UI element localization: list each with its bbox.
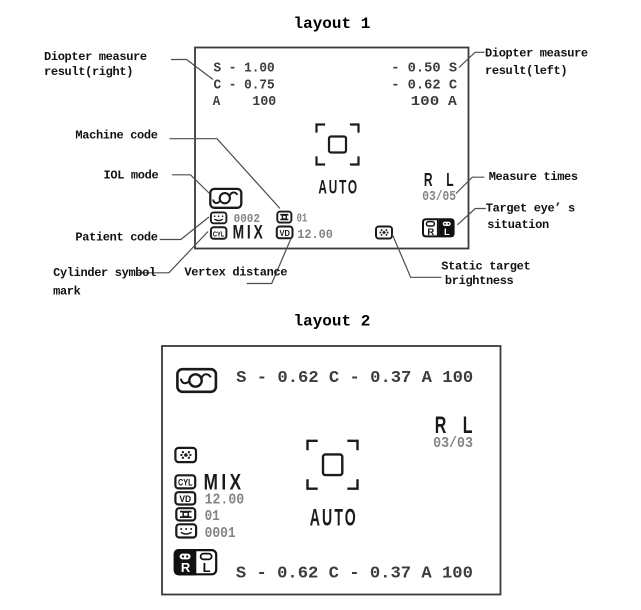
svg-text:L: L: [444, 227, 450, 238]
svg-text:Patient code: Patient code: [75, 230, 157, 244]
svg-text:Cylinder symbol: Cylinder symbol: [53, 266, 156, 280]
svg-text:S - 1.00: S - 1.00: [214, 61, 275, 77]
svg-text:Diopter measure: Diopter measure: [44, 50, 147, 64]
svg-text:01: 01: [297, 212, 308, 226]
svg-text:Target eye’ s: Target eye’ s: [486, 202, 575, 216]
svg-text:layout 2: layout 2: [294, 313, 371, 331]
svg-text:mark: mark: [53, 285, 81, 299]
svg-text:100: 100: [411, 94, 440, 110]
svg-text:R: R: [181, 560, 191, 575]
svg-text:AUTO: AUTO: [310, 506, 358, 532]
svg-text:Static target: Static target: [441, 259, 530, 273]
svg-text:MIX: MIX: [233, 222, 266, 244]
svg-text:C - 0.75: C - 0.75: [214, 77, 275, 93]
svg-text:12.00: 12.00: [297, 227, 333, 242]
svg-text:CYL: CYL: [213, 229, 225, 238]
svg-text:VD: VD: [179, 494, 191, 505]
svg-text:Measure times: Measure times: [489, 170, 578, 184]
svg-text:VD: VD: [280, 228, 290, 238]
svg-text:situation: situation: [487, 218, 549, 232]
svg-text:R L: R L: [424, 169, 459, 190]
svg-text:Machine code: Machine code: [75, 129, 157, 143]
svg-text:Vertex distance: Vertex distance: [184, 265, 287, 279]
svg-text:L: L: [203, 560, 211, 575]
svg-text:12.00: 12.00: [205, 493, 245, 509]
svg-text:MIX: MIX: [204, 469, 245, 494]
svg-text:brightness: brightness: [445, 274, 514, 288]
svg-text:03/03: 03/03: [433, 436, 473, 452]
svg-text:CYL: CYL: [178, 478, 193, 488]
svg-text:A: A: [213, 94, 221, 110]
svg-text:A: A: [448, 94, 457, 110]
svg-text:100: 100: [252, 94, 276, 110]
svg-text:result(left): result(left): [485, 64, 567, 78]
svg-text:Diopter measure: Diopter measure: [485, 46, 588, 60]
svg-text:- 0.62 C: - 0.62 C: [391, 77, 458, 93]
svg-text:R: R: [427, 227, 434, 238]
svg-text:result(right): result(right): [44, 65, 133, 79]
svg-text:IOL mode: IOL mode: [104, 168, 159, 182]
svg-text:S - 0.62 C - 0.37 A 100: S - 0.62 C - 0.37 A 100: [236, 368, 473, 387]
svg-text:0001: 0001: [205, 526, 236, 542]
svg-text:03/05: 03/05: [422, 190, 456, 205]
svg-text:S - 0.62 C - 0.37 A 100: S - 0.62 C - 0.37 A 100: [236, 564, 473, 583]
svg-text:AUTO: AUTO: [318, 178, 359, 199]
svg-text:- 0.50 S: - 0.50 S: [391, 61, 457, 77]
svg-text:layout 1: layout 1: [294, 15, 371, 33]
svg-text:01: 01: [205, 509, 220, 525]
